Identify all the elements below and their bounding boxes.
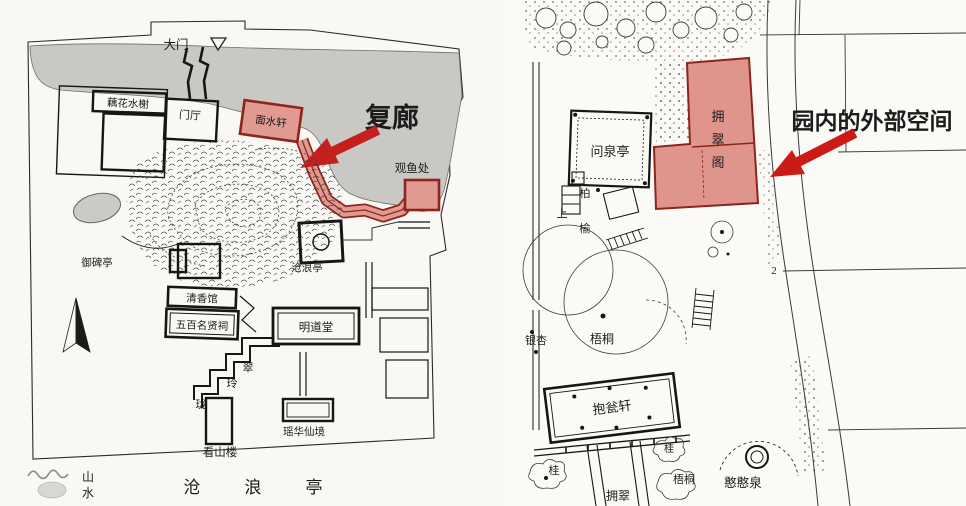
outer-space-arrow-icon — [770, 133, 855, 177]
cypress-label: 柏 — [580, 186, 591, 200]
staircase-lower — [692, 288, 714, 330]
pavilion-connector — [342, 222, 398, 240]
west-wall — [533, 62, 539, 430]
yongcui-plan-panel: 2 问泉亭 拥 翠 阁 园内的外部空间 柏 上 榆 — [506, 0, 966, 506]
hanhan-spring-well-icon — [720, 441, 798, 476]
staircase-upper — [606, 228, 648, 250]
title-char-2: 浪 — [245, 478, 262, 497]
osmanthus-mid-label: 桂 — [664, 442, 674, 455]
baoweng-xuan-label: 抱瓮轩 — [592, 398, 633, 418]
ginkgo-label: 银杏 — [525, 333, 547, 347]
fish-viewing-pavilion — [405, 180, 439, 210]
kanshan-tower-building — [206, 398, 232, 444]
cypress-trunk-dot — [596, 188, 600, 192]
kanshan-tower-label: 看山楼 — [203, 445, 238, 459]
plan-title: 沧 浪 亭 — [184, 478, 323, 497]
fish-viewing-label: 观鱼处 — [395, 161, 430, 175]
north-arrow-icon — [63, 298, 90, 352]
grid-number-label: 2 — [771, 265, 777, 277]
yongcui-plan-drawing: 2 问泉亭 拥 翠 阁 园内的外部空间 柏 上 榆 — [506, 0, 966, 506]
wutong-bottom-label: 梧桐 — [673, 472, 695, 486]
trunk-dots — [530, 230, 730, 354]
cuilinglong-char-2: 玲 — [227, 377, 238, 390]
canglang-pavilion-label: 沧浪亭 — [291, 261, 323, 274]
tree-canopies — [523, 221, 733, 354]
watermark-char-2: 水 — [82, 486, 94, 500]
canglang-plan-drawing: 大门 藕花水榭 门厅 面水轩 观鱼处 复廊 — [0, 0, 506, 506]
road-gravel-texture-2 — [790, 356, 826, 474]
entrance-hall-label: 门厅 — [179, 107, 202, 122]
qingxiang-hall-label: 清香馆 — [186, 291, 218, 305]
wutong-mid-label: 梧桐 — [590, 331, 614, 346]
osmanthus-left-dot — [544, 476, 548, 480]
yaohua-realm-building — [283, 399, 333, 421]
watermark-logo: 山 水 — [28, 470, 94, 500]
yongcui-ge-char-1: 拥 — [711, 109, 724, 124]
outer-space-annotation: 园内的外部空间 — [792, 108, 953, 134]
sages-shrine-label: 五百名贤祠 — [175, 318, 228, 333]
canglang-plan-panel: 大门 藕花水榭 门厅 面水轩 观鱼处 复廊 — [0, 0, 506, 506]
osmanthus-left-label: 桂 — [549, 463, 560, 477]
yongcui-corridor-label: 拥翠 — [606, 489, 630, 503]
gate-label: 大门 — [163, 37, 188, 52]
yongcui-ge-char-2: 翠 — [711, 132, 724, 147]
hanhan-spring-label: 憨憨泉 — [724, 475, 762, 490]
yongcui-ge-char-3: 阁 — [711, 155, 724, 170]
cuilinglong-char-1: 翠 — [243, 361, 254, 374]
pond — [70, 189, 123, 228]
wenquan-pavilion-label: 问泉亭 — [590, 144, 629, 159]
lotus-pavilion-label: 藕花水榭 — [107, 96, 150, 111]
title-char-3: 亭 — [306, 478, 323, 497]
title-char-1: 沧 — [184, 478, 201, 497]
zigzag-wall — [240, 296, 256, 332]
watermark-char-1: 山 — [82, 470, 94, 484]
yaohua-realm-label: 瑶华仙境 — [283, 425, 325, 438]
imperial-stele-label: 御碑亭 — [81, 256, 113, 269]
mingdao-hall-label: 明道堂 — [299, 320, 334, 334]
